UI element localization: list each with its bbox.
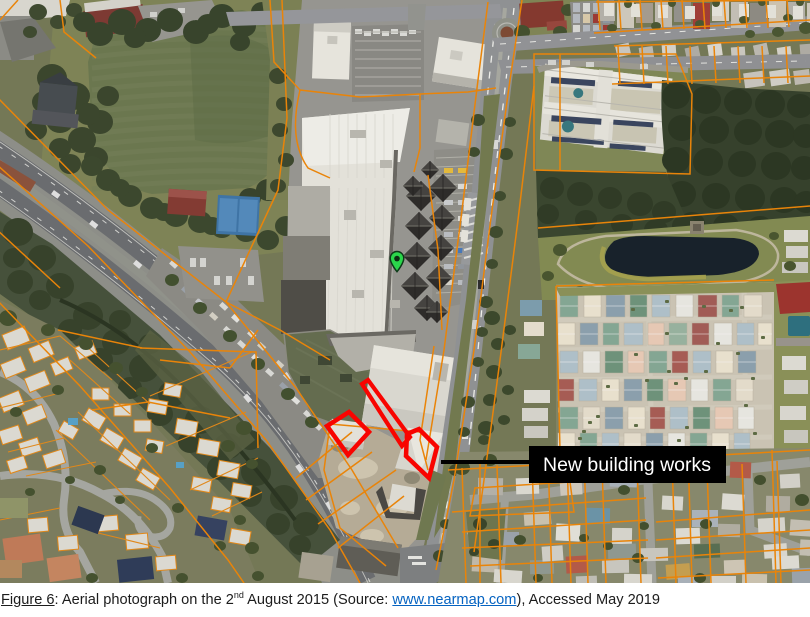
svg-text:New building works: New building works: [543, 454, 711, 476]
